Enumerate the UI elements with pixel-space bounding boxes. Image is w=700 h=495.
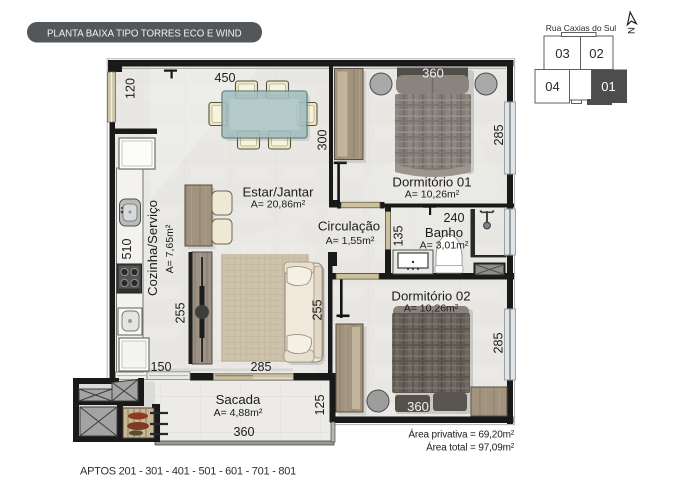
svg-text:A= 4,88m²: A= 4,88m² (214, 407, 263, 419)
svg-text:360: 360 (407, 399, 429, 414)
svg-text:255: 255 (311, 299, 325, 320)
svg-text:255: 255 (174, 302, 188, 323)
svg-text:120: 120 (124, 78, 138, 99)
svg-text:A= 7,65m²: A= 7,65m² (164, 224, 176, 273)
svg-text:Banho: Banho (425, 225, 463, 240)
svg-text:285: 285 (492, 332, 506, 353)
svg-text:135: 135 (392, 225, 406, 246)
svg-text:125: 125 (313, 394, 327, 415)
svg-text:01: 01 (601, 79, 615, 94)
svg-text:510: 510 (120, 238, 134, 259)
svg-text:A= 20,86m²: A= 20,86m² (251, 199, 306, 211)
svg-text:240: 240 (443, 211, 464, 225)
svg-text:Área total = 97,09m²: Área total = 97,09m² (426, 441, 515, 454)
svg-text:N: N (625, 27, 636, 34)
svg-text:Dormitório 01: Dormitório 01 (392, 175, 471, 190)
svg-text:A= 10,26m²: A= 10,26m² (405, 189, 460, 201)
svg-text:Estar/Jantar: Estar/Jantar (242, 185, 314, 200)
svg-text:A= 3,01m²: A= 3,01m² (420, 240, 469, 252)
svg-text:150: 150 (150, 360, 171, 374)
svg-text:Dormitório 02: Dormitório 02 (391, 289, 470, 304)
svg-text:360: 360 (233, 425, 254, 439)
svg-text:Circulação: Circulação (318, 219, 380, 234)
svg-text:03: 03 (555, 46, 569, 61)
svg-text:360: 360 (422, 66, 444, 81)
svg-text:04: 04 (545, 79, 559, 94)
svg-text:450: 450 (214, 71, 235, 85)
svg-text:Área privativa = 69,20m²: Área privativa = 69,20m² (408, 428, 514, 441)
svg-text:285: 285 (250, 360, 271, 374)
svg-text:A= 10,26m²: A= 10,26m² (404, 303, 459, 315)
svg-text:APTOS 201 - 301 - 401 - 501 -: APTOS 201 - 301 - 401 - 501 - 601 - 701 … (80, 466, 296, 478)
svg-text:285: 285 (492, 124, 506, 145)
svg-text:300: 300 (316, 129, 330, 150)
svg-text:Cozinha/Serviço: Cozinha/Serviço (145, 200, 160, 296)
svg-text:A= 1,55m²: A= 1,55m² (326, 235, 375, 247)
svg-text:Rua Caxias do Sul: Rua Caxias do Sul (546, 23, 617, 33)
svg-text:PLANTA BAIXA TIPO TORRES ECO E: PLANTA BAIXA TIPO TORRES ECO E WIND (47, 29, 242, 40)
svg-text:Sacada: Sacada (216, 392, 261, 407)
svg-text:02: 02 (589, 46, 603, 61)
